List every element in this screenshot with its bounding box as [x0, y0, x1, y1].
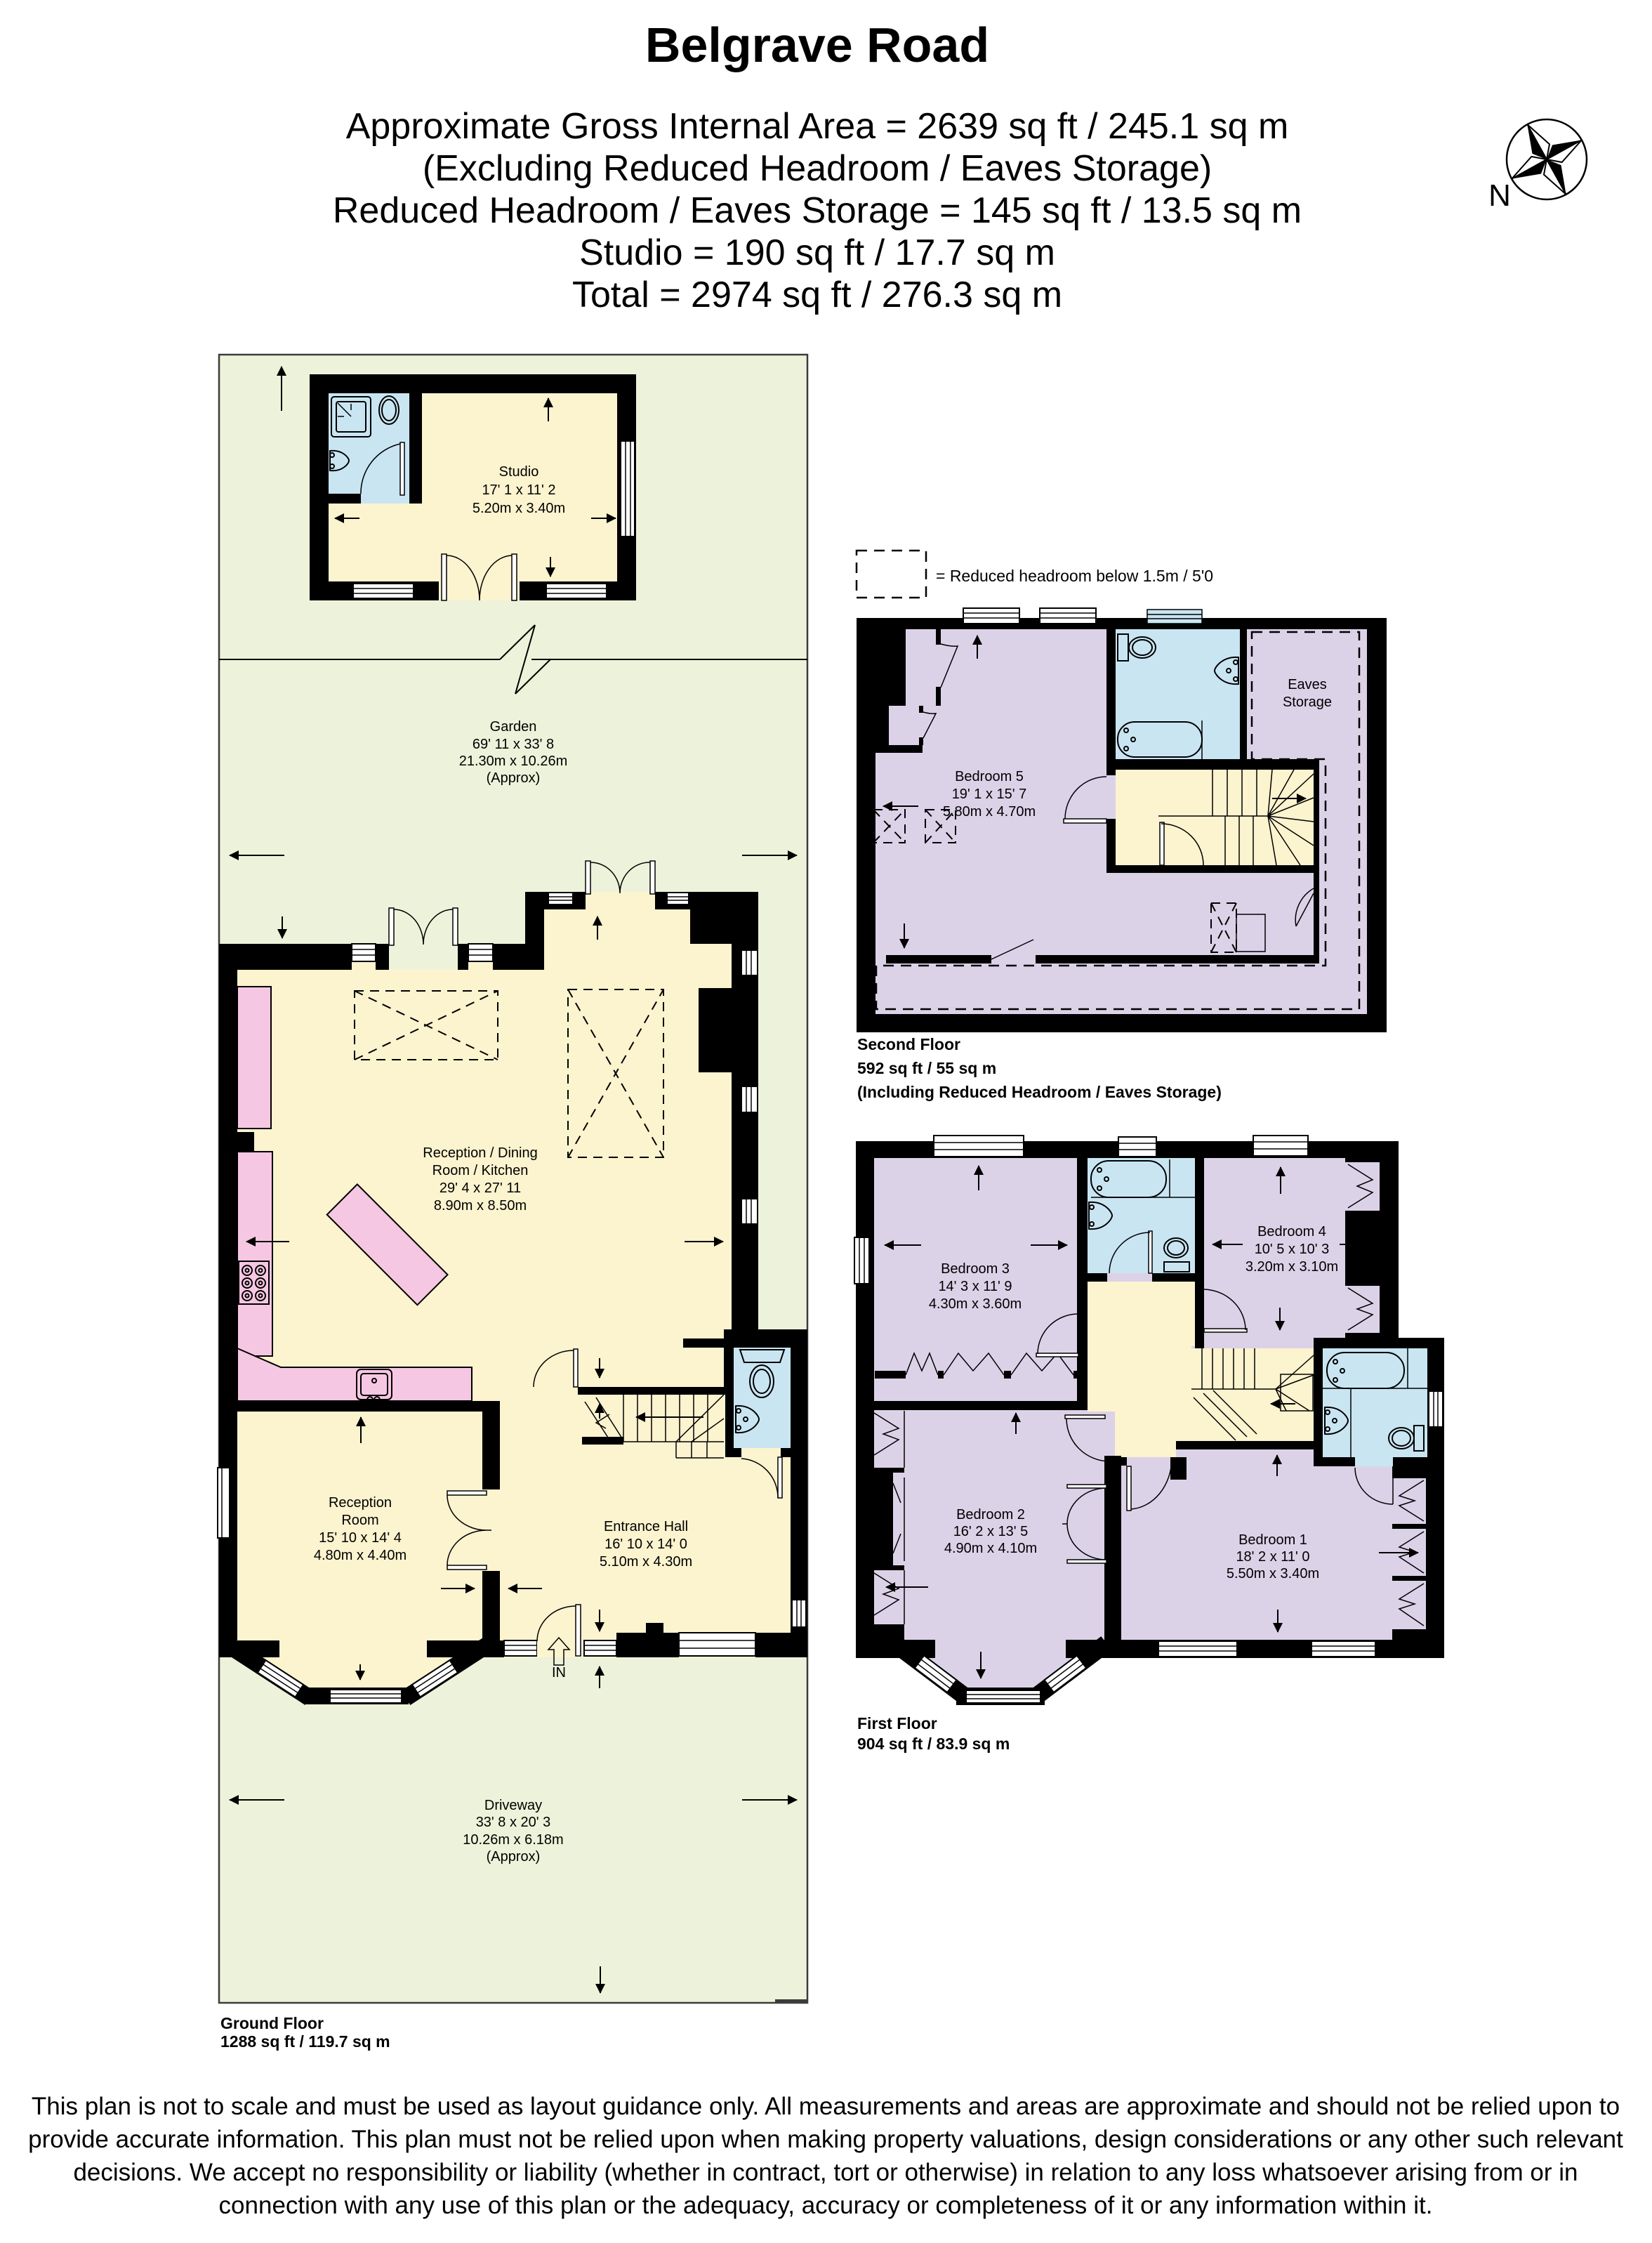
svg-text:4.30m x 3.60m: 4.30m x 3.60m [929, 1296, 1022, 1312]
svg-text:Storage: Storage [1283, 695, 1332, 710]
svg-text:10' 5 x 10' 3: 10' 5 x 10' 3 [1255, 1242, 1330, 1257]
svg-text:17' 1 x 11' 2: 17' 1 x 11' 2 [482, 482, 555, 498]
svg-text:Studio = 190 sq ft / 17.7 sq m: Studio = 190 sq ft / 17.7 sq m [579, 232, 1055, 273]
svg-text:(Approx): (Approx) [487, 770, 541, 786]
svg-text:16' 2 x 13' 5: 16' 2 x 13' 5 [953, 1524, 1029, 1539]
svg-text:Second Floor: Second Floor [857, 1035, 960, 1053]
svg-text:(Approx): (Approx) [487, 1849, 541, 1864]
svg-text:Bedroom 5: Bedroom 5 [955, 769, 1024, 784]
svg-text:N: N [1488, 178, 1511, 213]
svg-text:904 sq ft / 83.9 sq m: 904 sq ft / 83.9 sq m [857, 1735, 1010, 1753]
svg-text:Driveway: Driveway [484, 1798, 542, 1813]
svg-text:21.30m x 10.26m: 21.30m x 10.26m [459, 754, 568, 769]
svg-text:Reduced Headroom / Eaves Stora: Reduced Headroom / Eaves Storage = 145 s… [333, 190, 1302, 231]
svg-text:29' 4 x 27' 11: 29' 4 x 27' 11 [440, 1180, 521, 1196]
svg-text:18' 2 x 11' 0: 18' 2 x 11' 0 [1236, 1549, 1309, 1565]
svg-text:33' 8 x 20' 3: 33' 8 x 20' 3 [476, 1815, 551, 1830]
svg-text:Studio: Studio [499, 464, 539, 480]
svg-text:(Including Reduced Headroom /: (Including Reduced Headroom / Eaves Stor… [857, 1083, 1222, 1101]
svg-text:69' 11 x 33' 8: 69' 11 x 33' 8 [473, 737, 554, 752]
svg-text:(Excluding Reduced Headroom /: (Excluding Reduced Headroom / Eaves Stor… [423, 148, 1212, 189]
svg-text:4.90m x 4.10m: 4.90m x 4.10m [944, 1541, 1037, 1556]
svg-text:decisions. We accept no respon: decisions. We accept no responsibility o… [73, 2159, 1578, 2186]
svg-text:8.90m x 8.50m: 8.90m x 8.50m [434, 1198, 527, 1213]
svg-text:592 sq ft / 55 sq m: 592 sq ft / 55 sq m [857, 1059, 996, 1077]
svg-text:Ground Floor: Ground Floor [220, 2014, 324, 2032]
svg-text:5.10m x 4.30m: 5.10m x 4.30m [600, 1554, 692, 1570]
svg-text:16' 10 x 14' 0: 16' 10 x 14' 0 [604, 1537, 687, 1552]
svg-text:Total = 2974 sq ft / 276.3 sq: Total = 2974 sq ft / 276.3 sq m [572, 275, 1062, 315]
svg-text:This plan is not to scale and: This plan is not to scale and must be us… [32, 2093, 1620, 2120]
svg-text:14' 3 x 11' 9: 14' 3 x 11' 9 [938, 1279, 1012, 1294]
svg-text:Eaves: Eaves [1288, 677, 1327, 692]
svg-text:1288 sq ft / 119.7 sq m: 1288 sq ft / 119.7 sq m [220, 2032, 390, 2051]
svg-text:19' 1 x 15' 7: 19' 1 x 15' 7 [952, 787, 1027, 802]
svg-text:Bedroom 4: Bedroom 4 [1257, 1224, 1326, 1239]
svg-text:IN: IN [552, 1665, 566, 1680]
svg-text:4.80m x 4.40m: 4.80m x 4.40m [314, 1548, 407, 1563]
svg-text:= Reduced headroom below 1.5m: = Reduced headroom below 1.5m / 5'0 [936, 567, 1213, 585]
svg-text:Bedroom 2: Bedroom 2 [956, 1507, 1025, 1522]
svg-text:5.50m x 3.40m: 5.50m x 3.40m [1227, 1566, 1319, 1581]
svg-text:5.80m x 4.70m: 5.80m x 4.70m [943, 804, 1036, 820]
svg-text:15' 10 x 14' 4: 15' 10 x 14' 4 [319, 1530, 402, 1546]
svg-text:Garden: Garden [490, 719, 537, 735]
svg-text:Reception / Dining: Reception / Dining [423, 1145, 537, 1161]
svg-text:First Floor: First Floor [857, 1714, 937, 1732]
svg-text:Entrance Hall: Entrance Hall [604, 1519, 688, 1534]
svg-text:Approximate Gross Internal Are: Approximate Gross Internal Area = 2639 s… [346, 106, 1289, 147]
svg-text:Bedroom 1: Bedroom 1 [1238, 1532, 1307, 1548]
svg-text:3.20m x 3.10m: 3.20m x 3.10m [1245, 1259, 1338, 1275]
svg-text:Belgrave Road: Belgrave Road [645, 18, 989, 72]
svg-text:Reception: Reception [329, 1495, 392, 1511]
svg-text:Room: Room [341, 1513, 378, 1528]
svg-text:Room / Kitchen: Room / Kitchen [432, 1163, 529, 1178]
svg-text:Bedroom 3: Bedroom 3 [941, 1261, 1010, 1277]
svg-text:5.20m x 3.40m: 5.20m x 3.40m [473, 501, 565, 516]
svg-text:10.26m x 6.18m: 10.26m x 6.18m [463, 1832, 563, 1848]
svg-text:provide accurate information.: provide accurate information. This plan … [28, 2126, 1623, 2153]
svg-text:connection with any use of thi: connection with any use of this plan or … [219, 2192, 1433, 2219]
